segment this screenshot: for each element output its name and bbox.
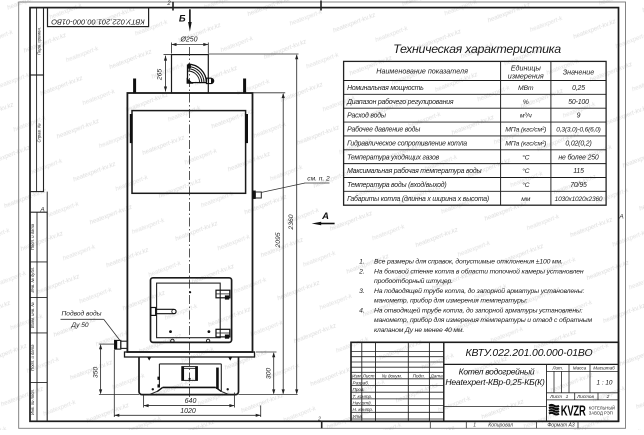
svg-text:1020: 1020 [180, 408, 196, 415]
svg-text:Инв. № дубл.: Инв. № дубл. [30, 267, 35, 293]
svg-text:ЗАВОД РЭП: ЗАВОД РЭП [589, 411, 613, 416]
svg-text:Лист: Лист [549, 394, 562, 399]
svg-text:не более 250: не более 250 [558, 153, 599, 161]
svg-text:50-100: 50-100 [568, 99, 589, 106]
svg-text:Подп. и дата: Подп. и дата [30, 344, 35, 371]
svg-text:Ø250: Ø250 [179, 37, 197, 44]
svg-text:1 : 10: 1 : 10 [597, 380, 613, 387]
svg-text:%: % [523, 99, 529, 106]
svg-text:Инв. № подл.: Инв. № подл. [30, 389, 35, 415]
svg-text:300: 300 [266, 368, 273, 380]
svg-text:0,3(3,0)-0,6(6,0): 0,3(3,0)-0,6(6,0) [556, 127, 600, 134]
svg-text:Взам. инв. №: Взам. инв. № [30, 302, 35, 328]
svg-text:KVZR: KVZR [561, 402, 586, 419]
svg-text:Расход воды: Расход воды [347, 112, 386, 120]
svg-text:манометр, прибор для измерения: манометр, прибор для измерения температу… [374, 297, 528, 305]
svg-text:Справ. №: Справ. № [36, 123, 41, 142]
svg-text:2095: 2095 [275, 232, 282, 248]
svg-text:мм: мм [521, 196, 531, 203]
svg-text:°С: °С [522, 153, 530, 161]
svg-text:Дата: Дата [430, 373, 444, 378]
svg-text:Рабочее давление воды: Рабочее давление воды [347, 126, 420, 134]
svg-text:Габариты котла (длинна х ширин: Габариты котла (длинна х ширина х высота… [347, 195, 489, 203]
svg-text:Н. контр.: Н. контр. [353, 407, 374, 412]
svg-text:КВТУ.022.201.00.000-01ВО: КВТУ.022.201.00.000-01ВО [51, 18, 145, 27]
svg-text:Перв. примен.: Перв. примен. [36, 27, 41, 55]
svg-text:640: 640 [185, 398, 197, 405]
svg-text:1: 1 [566, 394, 569, 400]
svg-text:измерения: измерения [508, 72, 544, 81]
svg-text:Подп. и дата: Подп. и дата [30, 223, 35, 250]
svg-text:Ду 50: Ду 50 [70, 322, 89, 329]
svg-text:Наименование показателя: Наименование показателя [376, 67, 468, 76]
svg-text:Гидравлическое сопротивление к: Гидравлическое сопротивление котла [347, 139, 467, 147]
svg-text:Масштаб: Масштаб [593, 366, 615, 371]
svg-text:м³/ч: м³/ч [520, 113, 532, 120]
svg-text:Копировал: Копировал [488, 422, 513, 428]
svg-text:см. п. 2: см. п. 2 [307, 175, 330, 182]
svg-text:КОТЕЛЬНЫЙ: КОТЕЛЬНЫЙ [589, 405, 615, 410]
svg-text:350: 350 [92, 367, 99, 379]
svg-text:4.: 4. [359, 307, 365, 314]
svg-text:9: 9 [577, 113, 581, 120]
svg-text:1.: 1. [359, 259, 365, 266]
svg-text:265: 265 [156, 69, 163, 82]
svg-text:Пров.: Пров. [353, 387, 365, 392]
svg-text:КВТУ.022.201.00.000-01ВО: КВТУ.022.201.00.000-01ВО [465, 348, 592, 359]
svg-text:Нач.отд.: Нач.отд. [353, 401, 372, 406]
svg-text:Номинальная мощность: Номинальная мощность [347, 85, 424, 92]
svg-text:манометр, прибор для измерения: манометр, прибор для измерения температу… [374, 316, 593, 324]
svg-text:Максимальная рабочая температу: Максимальная рабочая температура воды [347, 167, 481, 175]
svg-text:1: 1 [473, 422, 476, 428]
svg-text:Масса: Масса [573, 366, 587, 371]
svg-text:Котел водогрейный: Котел водогрейный [459, 366, 535, 376]
svg-text:Подп.: Подп. [413, 373, 425, 378]
svg-text:клапаном Ду не менее 40 мм.: клапаном Ду не менее 40 мм. [374, 327, 464, 334]
svg-text:°С: °С [522, 181, 530, 189]
svg-text:На отводящей трубе котла, до з: На отводящей трубе котла, до запорной ар… [374, 306, 583, 314]
svg-text:2: 2 [317, 417, 321, 423]
svg-text:Лист: Лист [362, 373, 375, 378]
svg-text:2: 2 [606, 394, 610, 400]
svg-text:70/95: 70/95 [570, 182, 587, 189]
svg-text:Все размеры для справок, допус: Все размеры для справок, допустимые откл… [374, 258, 563, 266]
svg-text:Формат А3: Формат А3 [547, 422, 575, 428]
svg-text:°С: °С [522, 167, 530, 175]
svg-text:2360: 2360 [288, 214, 295, 230]
svg-text:Б: Б [179, 14, 186, 25]
svg-text:Температура воды (вход/выход): Температура воды (вход/выход) [347, 181, 446, 189]
svg-text:Подвод воды: Подвод воды [62, 310, 102, 318]
svg-text:0,02(0,2): 0,02(0,2) [565, 140, 591, 147]
svg-text:А: А [618, 214, 623, 221]
svg-text:Разраб.: Разраб. [353, 380, 370, 385]
svg-text:Диапазон рабочего регулировани: Диапазон рабочего регулирования [346, 98, 454, 106]
svg-text:1030х1020х2360: 1030х1020х2360 [555, 196, 603, 203]
svg-text:Техническая характеристика: Техническая характеристика [393, 42, 561, 56]
svg-text:На подводящей трубе котла, до: На подводящей трубе котла, до запорной а… [374, 287, 584, 295]
svg-text:Листов: Листов [576, 394, 594, 399]
svg-text:Т. контр.: Т. контр. [353, 394, 373, 399]
svg-text:Лит.: Лит. [551, 366, 563, 371]
svg-text:0,25: 0,25 [572, 85, 585, 92]
svg-text:На боковой стенке котла в обла: На боковой стенке котла в области топочн… [374, 267, 584, 275]
svg-text:Изм: Изм [352, 373, 361, 378]
svg-text:МПа (кгс/см²): МПа (кгс/см²) [505, 127, 546, 134]
svg-text:2.: 2. [358, 268, 365, 275]
svg-text:№ докум.: № докум. [382, 373, 402, 378]
svg-text:пробоотборный штуцер.: пробоотборный штуцер. [374, 277, 453, 285]
svg-text:Значение: Значение [563, 68, 595, 77]
svg-text:Утв.: Утв. [353, 414, 363, 419]
svg-text:Температура уходящих газов: Температура уходящих газов [347, 153, 440, 161]
svg-text:2: 2 [166, 1, 171, 7]
svg-text:115: 115 [573, 168, 584, 175]
svg-text:А: А [321, 211, 329, 222]
svg-text:МВт: МВт [518, 85, 534, 92]
svg-text:3.: 3. [359, 288, 365, 295]
svg-text:МПа (кгс/см²): МПа (кгс/см²) [505, 140, 546, 147]
svg-text:Heatexpert-КВр-0,25-КБ(К): Heatexpert-КВр-0,25-КБ(К) [445, 377, 545, 387]
